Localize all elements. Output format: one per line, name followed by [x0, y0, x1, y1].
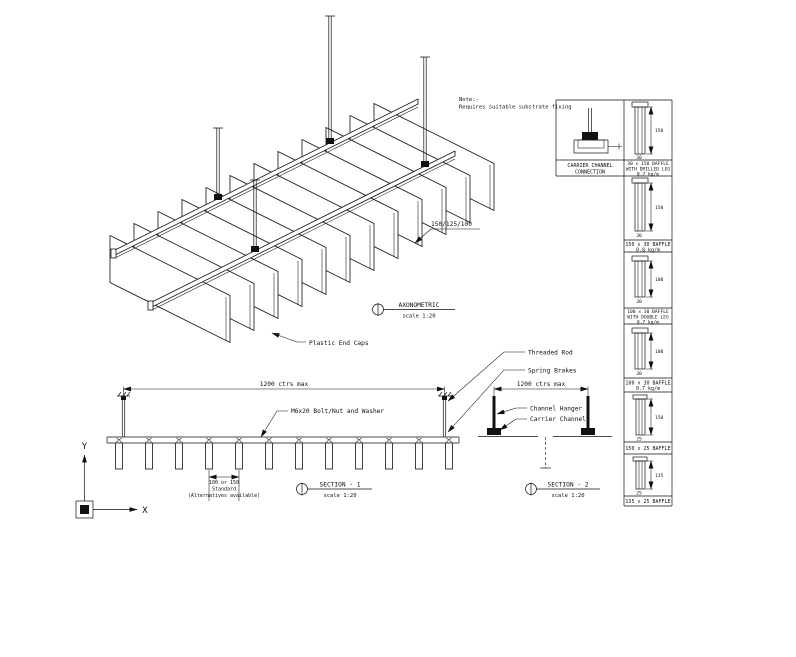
dim-text-3: (Alternatives available): [188, 493, 260, 499]
panel-label-1: 30 x 150 BAFFLE: [627, 161, 669, 167]
axonometric-title: AXONOMETRIC: [399, 302, 440, 309]
panel-label-1: 100 x 30 BAFFLE: [627, 309, 669, 315]
dim-width: 25: [636, 437, 642, 443]
dim-width: 30: [636, 371, 642, 377]
dim-extension-lines: [646, 461, 653, 489]
baffle-profile-walls: [638, 183, 642, 231]
dim-baffle-spacing: 100 or 150 Standard (Alternatives availa…: [188, 470, 260, 501]
channel-hanger: [493, 396, 496, 428]
carrier-channel: [107, 437, 459, 443]
baffle-cap: [633, 395, 647, 399]
baffle-profile-walls: [639, 461, 642, 489]
dim-height: 100: [655, 277, 664, 283]
bolt-x-marks: [117, 438, 452, 442]
section-2-view: 1200 ctrs max Channel Hanger Carrier Cha…: [478, 381, 612, 499]
spring-text: Spring Brakes: [528, 368, 577, 375]
rod-clip: [214, 194, 222, 200]
section-1-view: 1200 ctrs max 100 or 150 Standard (Al: [107, 350, 577, 502]
ucs-axis-icon: Y X: [76, 442, 148, 518]
baffle-profile: [636, 399, 645, 435]
end-caps-leader: [272, 333, 306, 342]
dim-height: 100: [655, 349, 664, 355]
y-axis-label: Y: [81, 442, 88, 452]
section-2-callout: SECTION - 2 scale 1:20: [526, 482, 601, 500]
baffle-cap: [633, 457, 647, 461]
baffle-detail-panel: 100 30 100 x 30 BAFFLE WITH DOUBLE LEG 0…: [627, 256, 669, 325]
threaded-rod: [213, 128, 223, 199]
channel-profile-inner: [578, 140, 604, 148]
threaded-rod: [325, 16, 335, 143]
section-1-scale: scale 1:20: [323, 493, 356, 499]
anchor-head: [121, 396, 126, 400]
end-caps-callout: Plastic End Caps: [272, 333, 369, 347]
baffle: [416, 443, 423, 469]
baffle-cap: [632, 256, 648, 261]
carrier-label-2: CONNECTION: [575, 170, 605, 176]
bolt-callout: M6x20 Bolt/Nut and Washer: [261, 408, 384, 437]
panel-label-3: 0.7 kg/m: [637, 319, 659, 325]
baffle: [296, 443, 303, 469]
anchor-head: [442, 396, 447, 400]
section-2-scale: scale 1:20: [551, 493, 584, 499]
baffle-profile: [635, 261, 645, 297]
baffle: [146, 443, 153, 469]
carrier-leader: [500, 419, 527, 430]
bolt-leader: [261, 411, 288, 437]
rod-clip: [251, 246, 259, 252]
hanger-clip: [582, 132, 598, 140]
baffle: [446, 443, 453, 469]
dim-text-1: 100 or 150: [209, 480, 239, 486]
baffle: [386, 443, 393, 469]
baffle-profile-walls: [638, 107, 642, 154]
baffle-profile: [635, 333, 645, 369]
spring-leader: [448, 370, 525, 432]
baffle-profile: [636, 461, 645, 489]
baffle: [116, 443, 123, 469]
dim-1200-ctrs-2: 1200 ctrs max: [494, 381, 588, 396]
baffle-profile-walls: [638, 261, 642, 297]
dim-extension-lines: [646, 261, 653, 297]
baffle-detail-panel: 150 25 150 x 25 BAFFLE: [625, 395, 670, 452]
rod-clip: [326, 138, 334, 144]
x-axis-label: X: [142, 506, 148, 516]
dim-width: 30: [636, 299, 642, 305]
panel-label-1: 150 x 25 BAFFLE: [625, 446, 670, 452]
cad-drawing-canvas: 150/125/100 Plastic End Caps AXONOMETRIC…: [0, 0, 796, 657]
baffle-cap: [632, 328, 648, 333]
dim-height: 150: [655, 128, 664, 134]
baffle-profile-walls: [639, 399, 642, 435]
dim-width: 30: [636, 233, 642, 239]
baffle-ceiling-drawing: 150/125/100 Plastic End Caps AXONOMETRIC…: [0, 0, 796, 657]
channel-hanger: [587, 396, 590, 428]
baffle-profile-walls: [638, 333, 642, 369]
panel-label-2: 0.7 kg/m: [636, 386, 660, 392]
baffle-profile: [635, 107, 645, 154]
carrier-channel-section: [581, 428, 595, 435]
channel-profile: [574, 140, 608, 153]
baffle-detail-panel: 135 25 135 x 25 BAFFLE: [625, 457, 670, 505]
baffle: [176, 443, 183, 469]
baffle: [326, 443, 333, 469]
baffle-detail-panel: 100 30 100 x 30 BAFFLE 0.7 kg/m: [625, 328, 670, 392]
dim-extension-lines: [646, 107, 653, 154]
depth-dim-text: 150/125/100: [431, 221, 472, 228]
hanger-text: Channel Hanger: [530, 406, 582, 413]
dim-width: 25: [636, 491, 642, 497]
baffle: [236, 443, 243, 469]
section-2-title: SECTION - 2: [548, 482, 589, 489]
axonometric-scale: scale 1:20: [402, 314, 435, 320]
baffle-profile: [635, 183, 645, 231]
carrier-label-1: CARRIER CHANNEL: [567, 163, 612, 169]
dim-width: 30: [636, 155, 642, 161]
hanger-callouts: Channel Hanger Carrier Channel: [497, 406, 586, 431]
carrier-channel-detail: CARRIER CHANNEL CONNECTION: [567, 108, 622, 176]
panel-label-1: 135 x 25 BAFFLE: [625, 499, 670, 505]
axonometric-callout: AXONOMETRIC scale 1:20: [373, 302, 456, 320]
rod-clip: [421, 161, 429, 167]
bolt-text: M6x20 Bolt/Nut and Washer: [291, 408, 384, 415]
dim-extension-lines: [646, 333, 653, 369]
note-block: Note:- Requires suitable substrate fixin…: [459, 97, 572, 111]
panel-label-2: 0.8 kg/m: [636, 248, 660, 254]
baffle: [356, 443, 363, 469]
dim-text-2: Standard: [212, 487, 236, 493]
note-line-2: Requires suitable substrate fixing: [459, 105, 572, 111]
baffle: [266, 443, 273, 469]
dim-height: 150: [655, 415, 664, 421]
baffle-cap: [632, 102, 648, 107]
dim-height: 150: [655, 205, 664, 211]
center-mark: [608, 144, 622, 150]
dim-height: 135: [655, 473, 664, 479]
rail-end: [111, 249, 116, 258]
baffle: [206, 443, 213, 469]
section-1-callout: SECTION - 1 scale 1:20: [297, 482, 373, 500]
dim-extension-lines: [646, 399, 653, 435]
threaded-rod: [443, 400, 445, 437]
carrier-text: Carrier Channel: [530, 416, 586, 423]
threaded-rod: [122, 400, 124, 437]
rail-end: [148, 301, 153, 310]
section-1-title: SECTION - 1: [320, 482, 361, 489]
detail-column: CARRIER CHANNEL CONNECTION 150 30 30 x 1…: [556, 100, 672, 506]
note-line-1: Note:-: [459, 97, 479, 103]
dim-text: 1200 ctrs max: [517, 381, 566, 388]
dim-text: 1200 ctrs max: [260, 381, 309, 388]
panel-label-3: 0.7 kg/m: [637, 171, 659, 177]
threaded-rod-leader: [448, 352, 525, 401]
carrier-channel-section: [487, 428, 501, 435]
end-caps-text: Plastic End Caps: [309, 340, 369, 347]
dim-1200-ctrs: 1200 ctrs max: [124, 381, 445, 395]
hanger-leader: [497, 408, 527, 414]
dim-extension-lines: [646, 183, 653, 231]
origin-marker: [80, 505, 89, 514]
baffle-detail-panel: 150 30 30 x 150 BAFFLE WITH DRILLED LEG …: [626, 102, 670, 177]
threaded-rod-text: Threaded Rod: [528, 350, 573, 357]
baffle-detail-panel: 150 30 150 x 30 BAFFLE 0.8 kg/m: [625, 178, 670, 254]
hanger-rod: [589, 108, 592, 134]
baffle-cap: [632, 178, 648, 183]
isometric-view: 150/125/100 Plastic End Caps AXONOMETRIC…: [110, 16, 494, 347]
